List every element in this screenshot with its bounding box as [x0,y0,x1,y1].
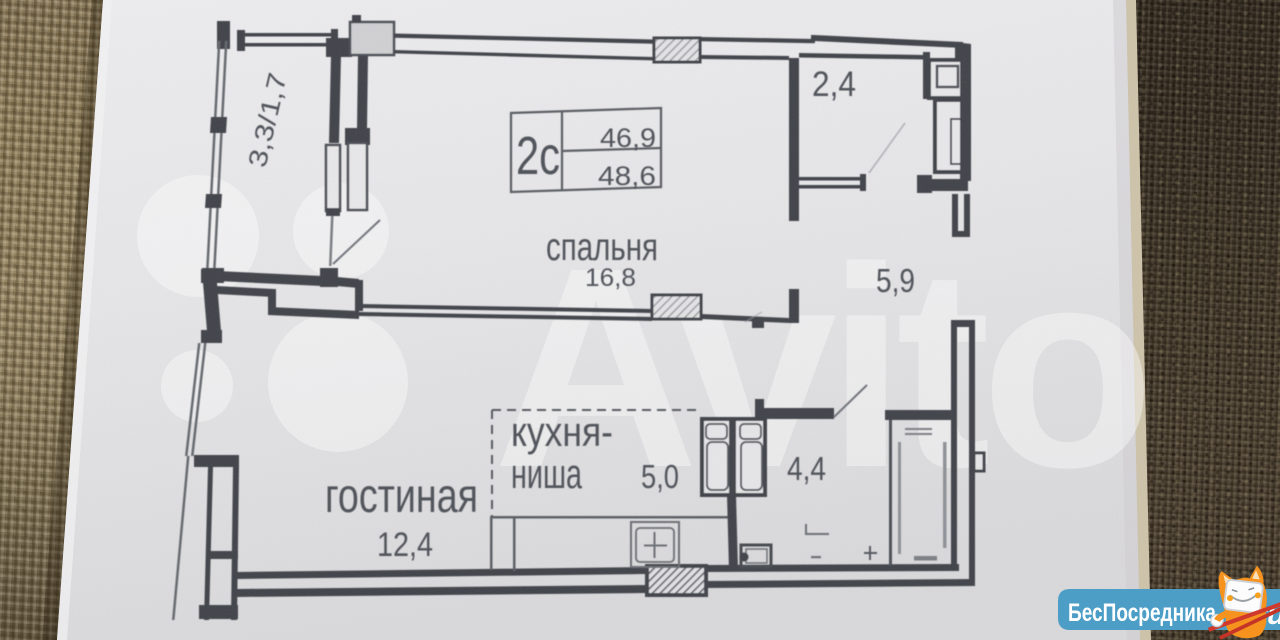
svg-text:БесПосредника: БесПосредника [1068,599,1217,627]
